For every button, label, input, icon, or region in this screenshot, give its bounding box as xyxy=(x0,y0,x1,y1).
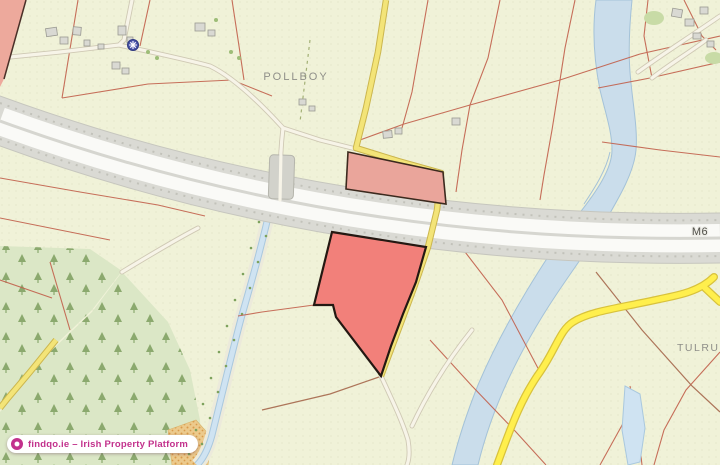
watermark-badge: findqo.ie – Irish Property Platform xyxy=(7,435,198,453)
townland-label-pollboy: POLLBOY xyxy=(263,71,328,83)
motorway-overbridge xyxy=(268,150,295,200)
watermark-text: findqo.ie – Irish Property Platform xyxy=(28,439,188,450)
road-label-m6: M6 xyxy=(692,226,708,238)
townland-label-tulrush: TULRUSH xyxy=(677,342,720,354)
map-canvas[interactable]: POLLBOY TULRUSH M6 xyxy=(0,0,720,465)
property-map[interactable]: POLLBOY TULRUSH M6 findqo.ie – Irish Pro… xyxy=(0,0,720,465)
findqo-logo-icon xyxy=(11,438,23,450)
religious-site-icon xyxy=(128,40,139,51)
